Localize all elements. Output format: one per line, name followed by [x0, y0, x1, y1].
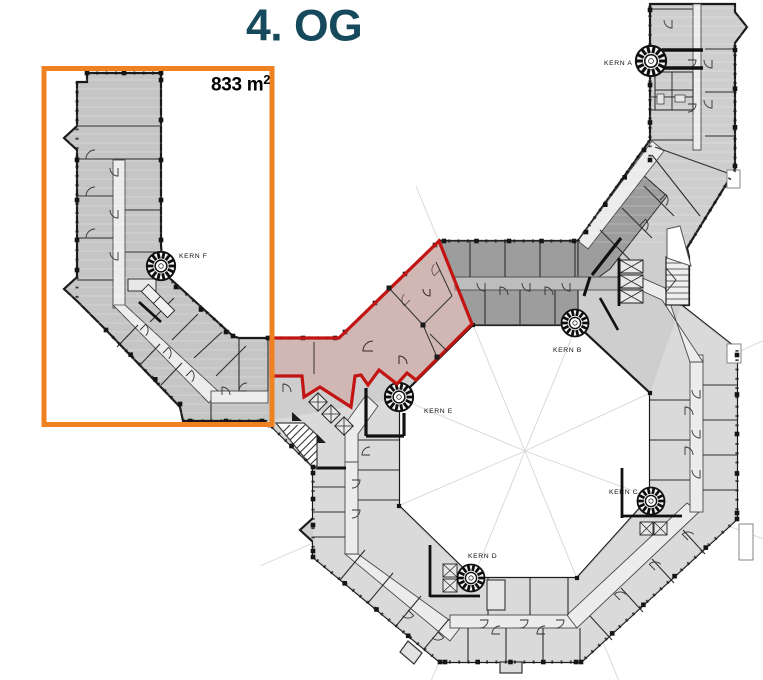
svg-text:KERN E: KERN E	[424, 408, 453, 415]
svg-text:KERN C: KERN C	[609, 489, 638, 496]
svg-text:4. OG: 4. OG	[246, 2, 362, 51]
svg-text:833 m2: 833 m2	[211, 73, 270, 96]
svg-text:KERN A: KERN A	[604, 60, 633, 67]
svg-text:KERN D: KERN D	[468, 553, 497, 560]
svg-text:KERN B: KERN B	[553, 347, 582, 354]
svg-text:KERN F: KERN F	[179, 253, 208, 260]
